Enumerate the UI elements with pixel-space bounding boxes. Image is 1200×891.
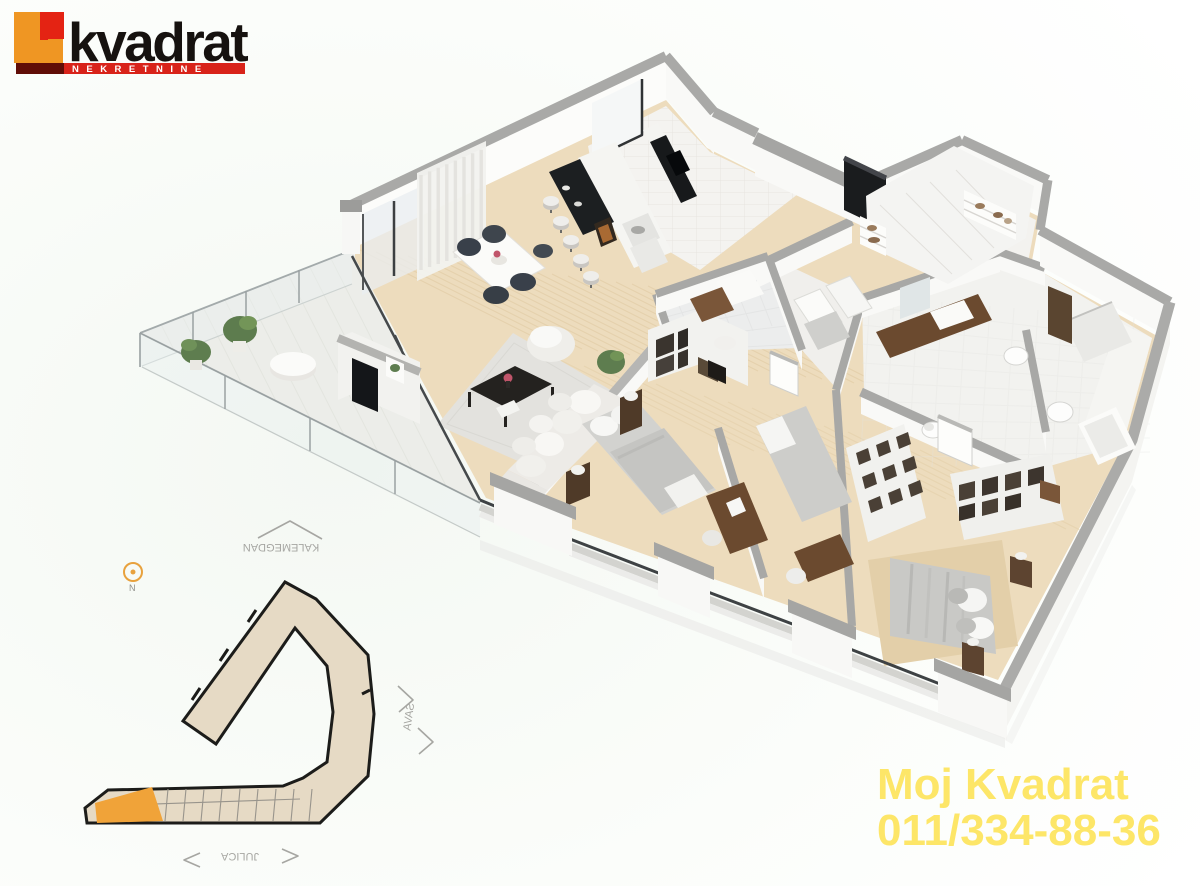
svg-text:Moj Kvadrat: Moj Kvadrat [877,760,1129,809]
svg-text:KALEMEGDAN: KALEMEGDAN [243,541,319,553]
svg-text:011/334-88-36: 011/334-88-36 [877,806,1161,855]
svg-text:JULICA: JULICA [220,850,259,862]
svg-text:N: N [129,583,136,593]
svg-text:NEKRETNINE: NEKRETNINE [72,64,209,75]
